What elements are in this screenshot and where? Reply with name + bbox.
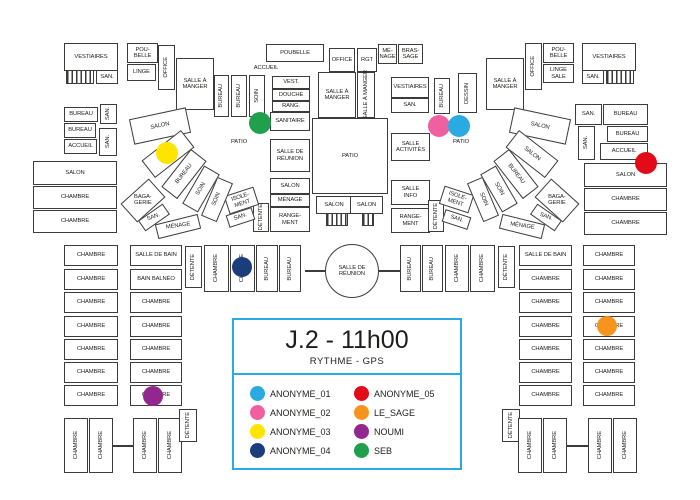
room-chambre-bottom-l1: CHAMBRE xyxy=(64,418,88,473)
room-label-chambre-d5: CHAMBRE xyxy=(595,346,623,352)
legend-dot-ANONYME_05 xyxy=(354,386,369,401)
room-label-chambre-mid-l1: CHAMBRE xyxy=(213,254,219,282)
room-label-salon-left-edge: SALON xyxy=(65,170,84,176)
room-rangement-center-right: RANGE- MENT xyxy=(391,208,430,233)
room-label-soin-arc-left-2: SOIN xyxy=(211,192,222,207)
room-label-bureau-vert-l1: BUREAU xyxy=(218,84,224,108)
room-bureau-mid-l2: BUREAU xyxy=(279,245,301,292)
room-label-san-top-right: SAN. xyxy=(586,74,599,80)
room-san-top-right: SAN. xyxy=(582,70,604,84)
room-label-san-center-right: SAN. xyxy=(403,102,416,108)
legend-entry-NOUMI: NOUMI xyxy=(354,422,460,441)
room-label-sanitaire-center: SANITAIRE xyxy=(275,118,304,124)
room-label-detente-mid-right: DÉTENTE xyxy=(503,254,509,280)
room-chambre-b4: CHAMBRE xyxy=(130,362,182,383)
room-label-chambre-b2: CHAMBRE xyxy=(142,323,170,329)
room-label-chambre-c6: CHAMBRE xyxy=(531,392,559,398)
room-label-chambre-c1: CHAMBRE xyxy=(531,276,559,282)
stairs-icon-3 xyxy=(362,213,374,226)
room-label-poubelle-right: POU- BELLE xyxy=(550,47,568,60)
room-label-chambre-c5: CHAMBRE xyxy=(531,369,559,375)
room-label-chambre-mid-r1: CHAMBRE xyxy=(454,254,460,282)
room-label-salon-arc-right-2: SALON xyxy=(522,146,541,163)
room-label-bureau-vert-l2: BUREAU xyxy=(236,84,242,108)
room-bureau-vert-l2: BUREAU xyxy=(231,75,247,117)
room-salle-de-bain-right: SALLE DE BAIN xyxy=(519,245,572,266)
room-label-chambre-b1: CHAMBRE xyxy=(142,299,170,305)
room-salle-a-manger-left: SALLE À MANGER xyxy=(176,58,214,110)
room-label-san-center-right2: SAN. xyxy=(449,214,464,224)
room-label-chambre-d2: CHAMBRE xyxy=(595,276,623,282)
room-label-chambre-b4: CHAMBRE xyxy=(142,369,170,375)
room-label-chambre-a3: CHAMBRE xyxy=(77,299,105,305)
room-salon-center-1: SALON xyxy=(316,196,352,214)
room-chambre-bottom-r2: CHAMBRE xyxy=(543,418,567,473)
room-san-top-left: SAN. xyxy=(96,70,118,84)
room-office-left: OFFICE xyxy=(158,45,175,90)
legend-dot-ANONYME_02 xyxy=(250,405,265,420)
room-label-salle-de-bain-right: SALLE DE BAIN xyxy=(525,252,567,258)
room-label-bagagerie-right: BAGA- GERIE xyxy=(548,194,566,207)
room-label-san-center-left: SAN. xyxy=(233,212,248,222)
room-chambre-right-edge-1: CHAMBRE xyxy=(584,188,667,211)
legend-entry-ANONYME_02: ANONYME_02 xyxy=(250,403,354,422)
room-label-linge-left: LINGE xyxy=(133,69,150,75)
room-label-salon-center-2: SALON xyxy=(357,202,376,208)
room-chambre-right-edge-2: CHAMBRE xyxy=(584,212,667,235)
room-salle-de-bain-left: SALLE DE BAIN xyxy=(130,245,182,266)
room-chambre-left-edge-2: CHAMBRE xyxy=(33,210,117,233)
room-poubelle-left: POU- BELLE xyxy=(127,43,158,63)
room-label-bureau-mid-r1: BUREAU xyxy=(407,257,413,281)
room-chambre-bottom-l3: CHAMBRE xyxy=(133,418,157,473)
room-label-chambre-a4: CHAMBRE xyxy=(77,323,105,329)
room-menage-top: MÉ- NAGE xyxy=(378,44,397,64)
wall-segment-2 xyxy=(305,270,325,272)
room-label-vest-center: VEST. xyxy=(283,79,299,85)
wall-segment-0 xyxy=(113,445,133,447)
room-label-salle-de-reunion-left: SALLE DE RÉUNION xyxy=(277,149,304,162)
room-label-bureau-right-1: BUREAU xyxy=(614,111,638,117)
legend-entry-SEB: SEB xyxy=(354,441,460,460)
legend-label-ANONYME_05: ANONYME_05 xyxy=(374,389,435,399)
room-bureau-right-2: BUREAU xyxy=(607,126,648,142)
room-label-chambre-a6: CHAMBRE xyxy=(77,369,105,375)
room-chambre-d6: CHAMBRE xyxy=(583,362,635,383)
room-label-salon-center-1: SALON xyxy=(324,202,343,208)
room-salle-info: SALLE INFO xyxy=(391,180,430,205)
room-salon-left-edge: SALON xyxy=(33,161,117,185)
room-chambre-d2: CHAMBRE xyxy=(583,269,635,290)
room-label-salle-a-manger-right: SALLE À MANGER xyxy=(493,78,518,91)
room-label-chambre-bottom-l2: CHAMBRE xyxy=(98,431,104,459)
room-label-chambre-bottom-r1: CHAMBRE xyxy=(527,431,533,459)
room-label-salle-a-manger-left: SALLE À MANGER xyxy=(183,78,208,91)
legend-label-ANONYME_04: ANONYME_04 xyxy=(270,446,331,456)
room-label-salon-arc-right-1: SALON xyxy=(530,121,550,131)
room-chambre-c1: CHAMBRE xyxy=(519,269,572,290)
legend-dot-LE_SAGE xyxy=(354,405,369,420)
room-label-menage-arc-right: MÉNAGE xyxy=(509,222,534,232)
room-label-soin-arc-right-2: SOIN xyxy=(477,192,488,207)
room-chambre-mid-l1: CHAMBRE xyxy=(204,245,229,292)
room-label-accueil-left: ACCUEIL xyxy=(68,143,92,149)
room-detente-bottom-left: DÉTENTE xyxy=(179,409,197,442)
room-label-bureau-mid-l1: BUREAU xyxy=(264,257,270,281)
legend-label-ANONYME_03: ANONYME_03 xyxy=(270,427,331,437)
room-label-linge-sale-right: LINGE SALE xyxy=(550,67,567,80)
room-label-salle-a-manger-center-vert: SALLE À MANGER xyxy=(363,70,369,119)
room-label-chambre-bottom-l4: CHAMBRE xyxy=(167,431,173,459)
stairs-icon-1 xyxy=(606,70,634,84)
person-marker-ANONYME_02 xyxy=(428,115,450,137)
room-label-isolement-right: ISOLE- MENT xyxy=(446,190,468,208)
legend-entry-ANONYME_01: ANONYME_01 xyxy=(250,384,354,403)
room-salle-a-manger-center: SALLE À MANGER xyxy=(318,72,356,118)
room-bureau-left-1: BUREAU xyxy=(64,107,98,122)
room-chambre-b1: CHAMBRE xyxy=(130,292,182,313)
room-patio-left: PATIO xyxy=(218,136,260,149)
room-label-bureau-left-1: BUREAU xyxy=(69,111,93,117)
room-label-patio-right: PATIO xyxy=(453,139,469,145)
room-chambre-a6: CHAMBRE xyxy=(64,362,118,383)
legend-entry-ANONYME_03: ANONYME_03 xyxy=(250,422,354,441)
room-chambre-mid-r2: CHAMBRE xyxy=(470,245,495,292)
room-chambre-b2: CHAMBRE xyxy=(130,316,182,337)
room-label-poubelle-left: POU- BELLE xyxy=(134,47,152,60)
floor-plan-canvas: VESTIAIRESSAN.POU- BELLELINGEOFFICESALLE… xyxy=(0,0,700,500)
room-label-chambre-mid-r2: CHAMBRE xyxy=(479,254,485,282)
legend-dot-ANONYME_01 xyxy=(250,386,265,401)
room-label-detente-mid-left: DÉTENTE xyxy=(190,254,196,280)
room-detente-mid-left: DÉTENTE xyxy=(185,246,202,288)
room-label-menage-arc-left: MÉNAGE xyxy=(165,222,190,232)
room-detente-mid-right: DÉTENTE xyxy=(498,246,515,288)
room-label-salle-a-manger-center: SALLE À MANGER xyxy=(325,89,350,102)
room-label-salon-right-edge: SALON xyxy=(616,172,635,178)
stairs-icon-0 xyxy=(66,70,94,84)
room-chambre-bottom-r3: CHAMBRE xyxy=(588,418,612,473)
room-vest-center: VEST. xyxy=(272,76,310,89)
person-marker-ANONYME_05 xyxy=(635,152,657,174)
legend-subtitle: RYTHME - GPS xyxy=(234,356,460,367)
room-label-chambre-bottom-l3: CHAMBRE xyxy=(142,431,148,459)
person-marker-NOUMI xyxy=(143,386,163,406)
room-salle-activites: SALLE ACTIVITÉS xyxy=(391,133,430,161)
room-chambre-d5: CHAMBRE xyxy=(583,339,635,360)
room-label-chambre-a1: CHAMBRE xyxy=(77,252,105,258)
room-patio-right: PATIO xyxy=(440,136,482,149)
room-label-salle-de-reunion-circle: SALLE DE RÉUNION xyxy=(339,265,366,278)
room-label-vestiaires-top-right: VESTIAIRES xyxy=(592,54,625,60)
room-vestiaires-top-right: VESTIAIRES xyxy=(582,43,636,71)
room-san-left-vert2: SAN. xyxy=(99,128,117,156)
room-label-salle-info: SALLE INFO xyxy=(402,186,420,199)
room-linge-left: LINGE xyxy=(127,64,156,81)
room-dessin-vert: DESSIN xyxy=(458,73,477,113)
person-marker-LE_SAGE xyxy=(597,316,617,336)
room-chambre-b3: CHAMBRE xyxy=(130,339,182,360)
room-office-center: OFFICE xyxy=(329,48,355,72)
room-chambre-bottom-r1: CHAMBRE xyxy=(518,418,542,473)
room-label-san-left-vert1: SAN. xyxy=(105,107,111,120)
room-label-accueil-right: ACCUEIL xyxy=(612,148,636,154)
legend-entries: ANONYME_01ANONYME_02ANONYME_03ANONYME_04… xyxy=(234,375,460,460)
room-bureau-mid-r2: BUREAU xyxy=(422,245,443,292)
room-chambre-a7: CHAMBRE xyxy=(64,385,118,406)
wall-segment-3 xyxy=(379,270,400,272)
room-chambre-mid-r1: CHAMBRE xyxy=(445,245,469,292)
room-chambre-c4: CHAMBRE xyxy=(519,339,572,360)
room-label-bureau-arc-right: BUREAU xyxy=(506,163,526,186)
legend-title: J.2 - 11h00 xyxy=(234,327,460,353)
room-label-menage-center-left: MÉNAGE xyxy=(278,197,303,203)
room-label-rangement-center-left: RANGE- MENT xyxy=(279,213,301,226)
room-label-bureau-vert-center-right: BUREAU xyxy=(439,84,445,108)
room-chambre-a4: CHAMBRE xyxy=(64,316,118,337)
room-detente-center-left: DÉTENTE xyxy=(253,203,269,232)
room-label-chambre-b3: CHAMBRE xyxy=(142,346,170,352)
room-label-rangement-center-right: RANGE- MENT xyxy=(400,214,422,227)
room-douche-center: DOUCHE xyxy=(272,89,310,101)
person-marker-ANONYME_03 xyxy=(156,142,178,164)
room-label-salon-center-left: SALON xyxy=(280,183,299,189)
room-chambre-d1: CHAMBRE xyxy=(583,245,635,266)
room-label-bureau-mid-l2: BUREAU xyxy=(287,257,293,281)
room-salon-center-2: SALON xyxy=(350,196,383,214)
room-label-detente-center-left: DÉTENTE xyxy=(258,204,264,230)
room-salle-a-manger-right: SALLE À MANGER xyxy=(486,58,524,110)
room-sanitaire-center: SANITAIRE xyxy=(270,112,310,131)
room-label-bagagerie-left: BAGA- GERIE xyxy=(134,194,152,207)
room-bureau-mid-r1: BUREAU xyxy=(400,245,421,292)
room-accueil-center-left: ACCUEIL xyxy=(244,62,288,74)
wall-segment-1 xyxy=(567,445,588,447)
room-brassage-top: BRAS- SAGE xyxy=(398,44,423,64)
room-label-rang-center: RANG. xyxy=(282,103,300,109)
room-label-salon-arc-left-1: SALON xyxy=(150,121,170,131)
room-label-chambre-a2: CHAMBRE xyxy=(77,276,105,282)
room-chambre-c6: CHAMBRE xyxy=(519,385,572,406)
room-label-chambre-a7: CHAMBRE xyxy=(77,392,105,398)
room-label-rgt-center: RGT xyxy=(361,57,373,63)
room-chambre-d3: CHAMBRE xyxy=(583,292,635,313)
room-patio-center: PATIO xyxy=(312,118,388,194)
room-accueil-left: ACCUEIL xyxy=(64,139,97,154)
person-marker-ANONYME_04 xyxy=(232,257,252,277)
room-san-right-vert: SAN. xyxy=(578,126,595,160)
room-chambre-c2: CHAMBRE xyxy=(519,292,572,313)
room-chambre-a1: CHAMBRE xyxy=(64,245,118,266)
room-chambre-bottom-r4: CHAMBRE xyxy=(613,418,637,473)
room-label-chambre-left-edge-1: CHAMBRE xyxy=(61,194,89,200)
room-san-left-vert1: SAN. xyxy=(100,104,117,124)
room-bureau-vert-l1: BUREAU xyxy=(214,75,229,117)
room-chambre-c3: CHAMBRE xyxy=(519,316,572,337)
room-salon-center-left: SALON xyxy=(270,178,310,194)
room-label-chambre-d7: CHAMBRE xyxy=(595,392,623,398)
room-chambre-a3: CHAMBRE xyxy=(64,292,118,313)
room-label-bureau-mid-r2: BUREAU xyxy=(429,257,435,281)
room-label-soin-arc-left-1: SOIN xyxy=(195,181,208,196)
room-soin-vert-left: SOIN xyxy=(249,75,265,117)
room-label-san-right-1: SAN. xyxy=(582,111,595,117)
room-label-chambre-right-edge-1: CHAMBRE xyxy=(611,196,639,202)
room-label-bain-balneo: BAIN BALNÉO xyxy=(137,276,175,282)
room-label-office-left: OFFICE xyxy=(163,57,169,78)
room-label-dessin-vert: DESSIN xyxy=(464,83,470,104)
room-bureau-right-1: BUREAU xyxy=(603,104,648,125)
legend-entry-ANONYME_04: ANONYME_04 xyxy=(250,441,354,460)
legend-entry-LE_SAGE: LE_SAGE xyxy=(354,403,460,422)
legend-label-ANONYME_02: ANONYME_02 xyxy=(270,408,331,418)
room-salle-de-reunion-left: SALLE DE RÉUNION xyxy=(270,139,310,172)
room-linge-sale-right: LINGE SALE xyxy=(543,64,574,83)
room-label-chambre-bottom-r2: CHAMBRE xyxy=(552,431,558,459)
room-label-chambre-bottom-r4: CHAMBRE xyxy=(622,431,628,459)
person-marker-SEB xyxy=(249,112,271,134)
room-chambre-c5: CHAMBRE xyxy=(519,362,572,383)
room-chambre-left-edge-1: CHAMBRE xyxy=(33,186,117,209)
room-label-san-right-vert: SAN. xyxy=(583,136,589,149)
room-label-san-arc-right: SAN. xyxy=(539,212,554,223)
room-san-center-right: SAN. xyxy=(391,98,429,113)
room-label-office-right: OFFICE xyxy=(530,56,536,77)
room-chambre-a5: CHAMBRE xyxy=(64,339,118,360)
room-office-right: OFFICE xyxy=(525,43,542,90)
room-bureau-left-2: BUREAU xyxy=(64,123,96,138)
room-chambre-bottom-l2: CHAMBRE xyxy=(89,418,113,473)
room-label-detente-bottom-right: DÉTENTE xyxy=(508,412,514,438)
room-label-menage-top: MÉ- NAGE xyxy=(379,48,395,61)
room-label-accueil-center-left: ACCUEIL xyxy=(254,65,278,71)
room-label-bureau-right-2: BUREAU xyxy=(616,131,640,137)
room-label-san-left-vert2: SAN. xyxy=(105,135,111,148)
room-label-salle-de-bain-left: SALLE DE BAIN xyxy=(135,252,177,258)
legend-dot-ANONYME_04 xyxy=(250,443,265,458)
room-label-soin-vert-left: SOIN xyxy=(254,89,260,103)
room-label-chambre-c4: CHAMBRE xyxy=(531,346,559,352)
legend-panel: J.2 - 11h00 RYTHME - GPS ANONYME_01ANONY… xyxy=(232,318,462,470)
room-rangement-center-left: RANGE- MENT xyxy=(270,207,310,232)
room-chambre-a2: CHAMBRE xyxy=(64,269,118,290)
room-chambre-d7: CHAMBRE xyxy=(583,385,635,406)
room-bureau-vert-center-right: BUREAU xyxy=(434,78,450,114)
room-label-chambre-d3: CHAMBRE xyxy=(595,299,623,305)
room-label-detente-center-right: DÉTENTE xyxy=(433,203,439,229)
room-label-chambre-d1: CHAMBRE xyxy=(595,252,623,258)
room-label-soin-arc-right-1: SOIN xyxy=(493,181,506,196)
room-label-bureau-left-2: BUREAU xyxy=(68,127,92,133)
room-rgt-center: RGT xyxy=(357,48,377,72)
room-label-chambre-bottom-l1: CHAMBRE xyxy=(73,431,79,459)
room-label-san-arc-left: SAN. xyxy=(147,212,162,223)
room-label-chambre-right-edge-2: CHAMBRE xyxy=(611,220,639,226)
room-label-chambre-d6: CHAMBRE xyxy=(595,369,623,375)
room-salle-a-manger-center-vert: SALLE À MANGER xyxy=(357,72,375,118)
stairs-icon-2 xyxy=(326,213,348,226)
room-menage-center-left: MÉNAGE xyxy=(270,194,310,207)
legend-label-LE_SAGE: LE_SAGE xyxy=(374,408,415,418)
legend-label-NOUMI: NOUMI xyxy=(374,427,404,437)
room-label-chambre-a5: CHAMBRE xyxy=(77,346,105,352)
room-poubelle-right: POU- BELLE xyxy=(543,43,574,63)
person-marker-ANONYME_01 xyxy=(448,115,470,137)
room-label-vestiaires-top-left: VESTIAIRES xyxy=(74,54,107,60)
room-label-bureau-arc-left: BUREAU xyxy=(174,163,194,186)
legend-dot-NOUMI xyxy=(354,424,369,439)
room-label-san-top-left: SAN. xyxy=(100,74,113,80)
legend-label-SEB: SEB xyxy=(374,446,392,456)
legend-label-ANONYME_01: ANONYME_01 xyxy=(270,389,331,399)
room-label-brassage-top: BRAS- SAGE xyxy=(402,48,419,61)
room-label-patio-left: PATIO xyxy=(231,139,247,145)
room-label-poubelle-center: POUBELLE xyxy=(280,50,310,56)
room-label-chambre-c3: CHAMBRE xyxy=(531,323,559,329)
room-vestiaires-center-right: VESTIAIRES xyxy=(391,77,429,98)
room-label-salle-activites: SALLE ACTIVITÉS xyxy=(396,141,425,154)
room-bain-balneo: BAIN BALNÉO xyxy=(130,269,182,290)
room-label-chambre-bottom-r3: CHAMBRE xyxy=(597,431,603,459)
legend-dot-SEB xyxy=(354,443,369,458)
room-label-detente-bottom-left: DÉTENTE xyxy=(185,412,191,438)
room-poubelle-center: POUBELLE xyxy=(266,44,324,62)
room-label-office-center: OFFICE xyxy=(332,57,353,63)
room-label-douche-center: DOUCHE xyxy=(279,92,304,98)
room-san-right-1: SAN. xyxy=(575,104,602,125)
legend-dot-ANONYME_03 xyxy=(250,424,265,439)
legend-entry-ANONYME_05: ANONYME_05 xyxy=(354,384,460,403)
room-label-chambre-left-edge-2: CHAMBRE xyxy=(61,218,89,224)
room-rang-center: RANG. xyxy=(272,101,310,112)
room-bureau-mid-l1: BUREAU xyxy=(256,245,278,292)
room-label-patio-center: PATIO xyxy=(342,153,358,159)
room-vestiaires-top-left: VESTIAIRES xyxy=(64,43,118,71)
room-label-chambre-c2: CHAMBRE xyxy=(531,299,559,305)
room-salle-de-reunion-circle: SALLE DE RÉUNION xyxy=(325,244,379,298)
room-label-vestiaires-center-right: VESTIAIRES xyxy=(393,84,426,90)
